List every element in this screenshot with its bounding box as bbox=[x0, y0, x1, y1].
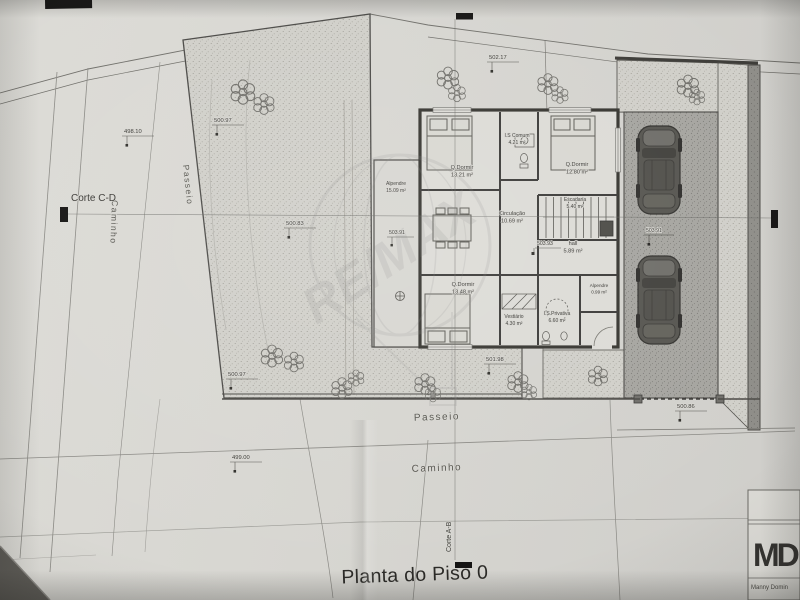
car-top-icon bbox=[636, 126, 682, 214]
elevation-marker: 498.10 bbox=[122, 129, 154, 147]
floor-plan-drawing: RE/MAX 498.10 500.97 502.17 500.83 503.9… bbox=[0, 0, 800, 600]
caminho-left-label: Caminho bbox=[108, 200, 120, 245]
room-area: 6.60 m² bbox=[549, 318, 566, 324]
room-name: Q.Dormir bbox=[566, 162, 589, 168]
room-label-dressing: Vestiário 4.30 m² bbox=[504, 314, 523, 327]
porch-column-symbol bbox=[396, 292, 405, 301]
car-bottom-icon bbox=[636, 256, 682, 344]
room-area: 15.09 m² bbox=[386, 188, 406, 194]
sheet-title: Planta do Piso 0 bbox=[341, 561, 489, 588]
elevation-marker: 502.17 bbox=[487, 55, 519, 73]
photo-artifacts bbox=[0, 0, 92, 600]
elevation-value: 502.17 bbox=[489, 55, 507, 61]
title-block: MD Manny Domin bbox=[748, 490, 800, 600]
bed-furniture-3 bbox=[425, 294, 470, 344]
room-area: 13.48 m² bbox=[452, 290, 474, 296]
room-label-porch-right: Alpendre 0.99 m² bbox=[590, 283, 609, 295]
room-area: 0.99 m² bbox=[591, 290, 607, 295]
path-lines-left bbox=[20, 62, 160, 572]
room-name: Q.Dormir bbox=[452, 282, 475, 288]
room-name: Circulação bbox=[499, 211, 525, 217]
room-name: Vestiário bbox=[504, 314, 523, 320]
room-area: 12.80 m² bbox=[566, 170, 588, 176]
elevation-value: 499.00 bbox=[232, 455, 250, 461]
elevation-value: 500.97 bbox=[228, 372, 246, 378]
room-name: Alpendre bbox=[590, 283, 609, 288]
room-area: 5.89 m² bbox=[564, 249, 583, 255]
elevation-value: 503.91 bbox=[646, 228, 662, 234]
caminho-bottom-label: Caminho bbox=[411, 462, 462, 475]
passeio-bottom-label: Passeio bbox=[414, 411, 460, 424]
right-yard bbox=[615, 58, 795, 430]
room-label-porch-left: Alpendre 15.09 m² bbox=[386, 181, 406, 194]
md-logo-icon: MD bbox=[753, 537, 799, 573]
elevation-value: 503.91 bbox=[389, 230, 405, 236]
corte-cd-label: Corte C-D bbox=[71, 193, 116, 204]
elevation-value: 503.93 bbox=[537, 241, 553, 247]
room-area: 10.69 m² bbox=[501, 219, 523, 225]
room-label-circulation: Circulação 10.69 m² bbox=[499, 211, 525, 225]
corte-ab-label: Corte A-B bbox=[446, 521, 453, 552]
top-edge-mark bbox=[45, 0, 92, 9]
room-name: hall bbox=[569, 241, 578, 247]
elevation-marker: 499.00 bbox=[230, 455, 262, 473]
room-label-stairs: Escadaria 5.40 m² bbox=[564, 197, 586, 210]
room-label-bedroom1: Q.Dormir 13.21 m² bbox=[451, 165, 474, 179]
room-name: Q.Dormir bbox=[451, 165, 474, 171]
garden-patch-bottom bbox=[522, 347, 625, 398]
room-area: 5.40 m² bbox=[567, 204, 584, 210]
room-name: I.S Comum bbox=[504, 133, 529, 139]
architect-name: Manny Domin bbox=[751, 585, 788, 591]
room-name: Alpendre bbox=[386, 181, 406, 187]
elevation-marker: 500.86 bbox=[675, 404, 707, 422]
room-name: I.S.Privativa bbox=[544, 311, 571, 317]
room-name: Escadaria bbox=[564, 197, 586, 203]
room-area: 13.21 m² bbox=[451, 173, 473, 179]
room-area: 4.21 m² bbox=[509, 140, 526, 146]
passeio-left-label: Passeio bbox=[181, 164, 195, 206]
room-area: 4.30 m² bbox=[506, 321, 523, 327]
room-label-bedroom3: Q.Dormir 13.48 m² bbox=[452, 282, 475, 296]
elevation-value: 501.98 bbox=[486, 357, 504, 363]
elevation-value: 498.10 bbox=[124, 129, 142, 135]
room-label-bedroom2: Q.Dormir 12.80 m² bbox=[566, 162, 589, 176]
elevation-value: 500.86 bbox=[677, 404, 695, 410]
elevation-value: 500.97 bbox=[214, 118, 232, 124]
photographed-floor-plan: RE/MAX 498.10 500.97 502.17 500.83 503.9… bbox=[0, 0, 800, 600]
elevation-value: 500.83 bbox=[286, 221, 304, 227]
